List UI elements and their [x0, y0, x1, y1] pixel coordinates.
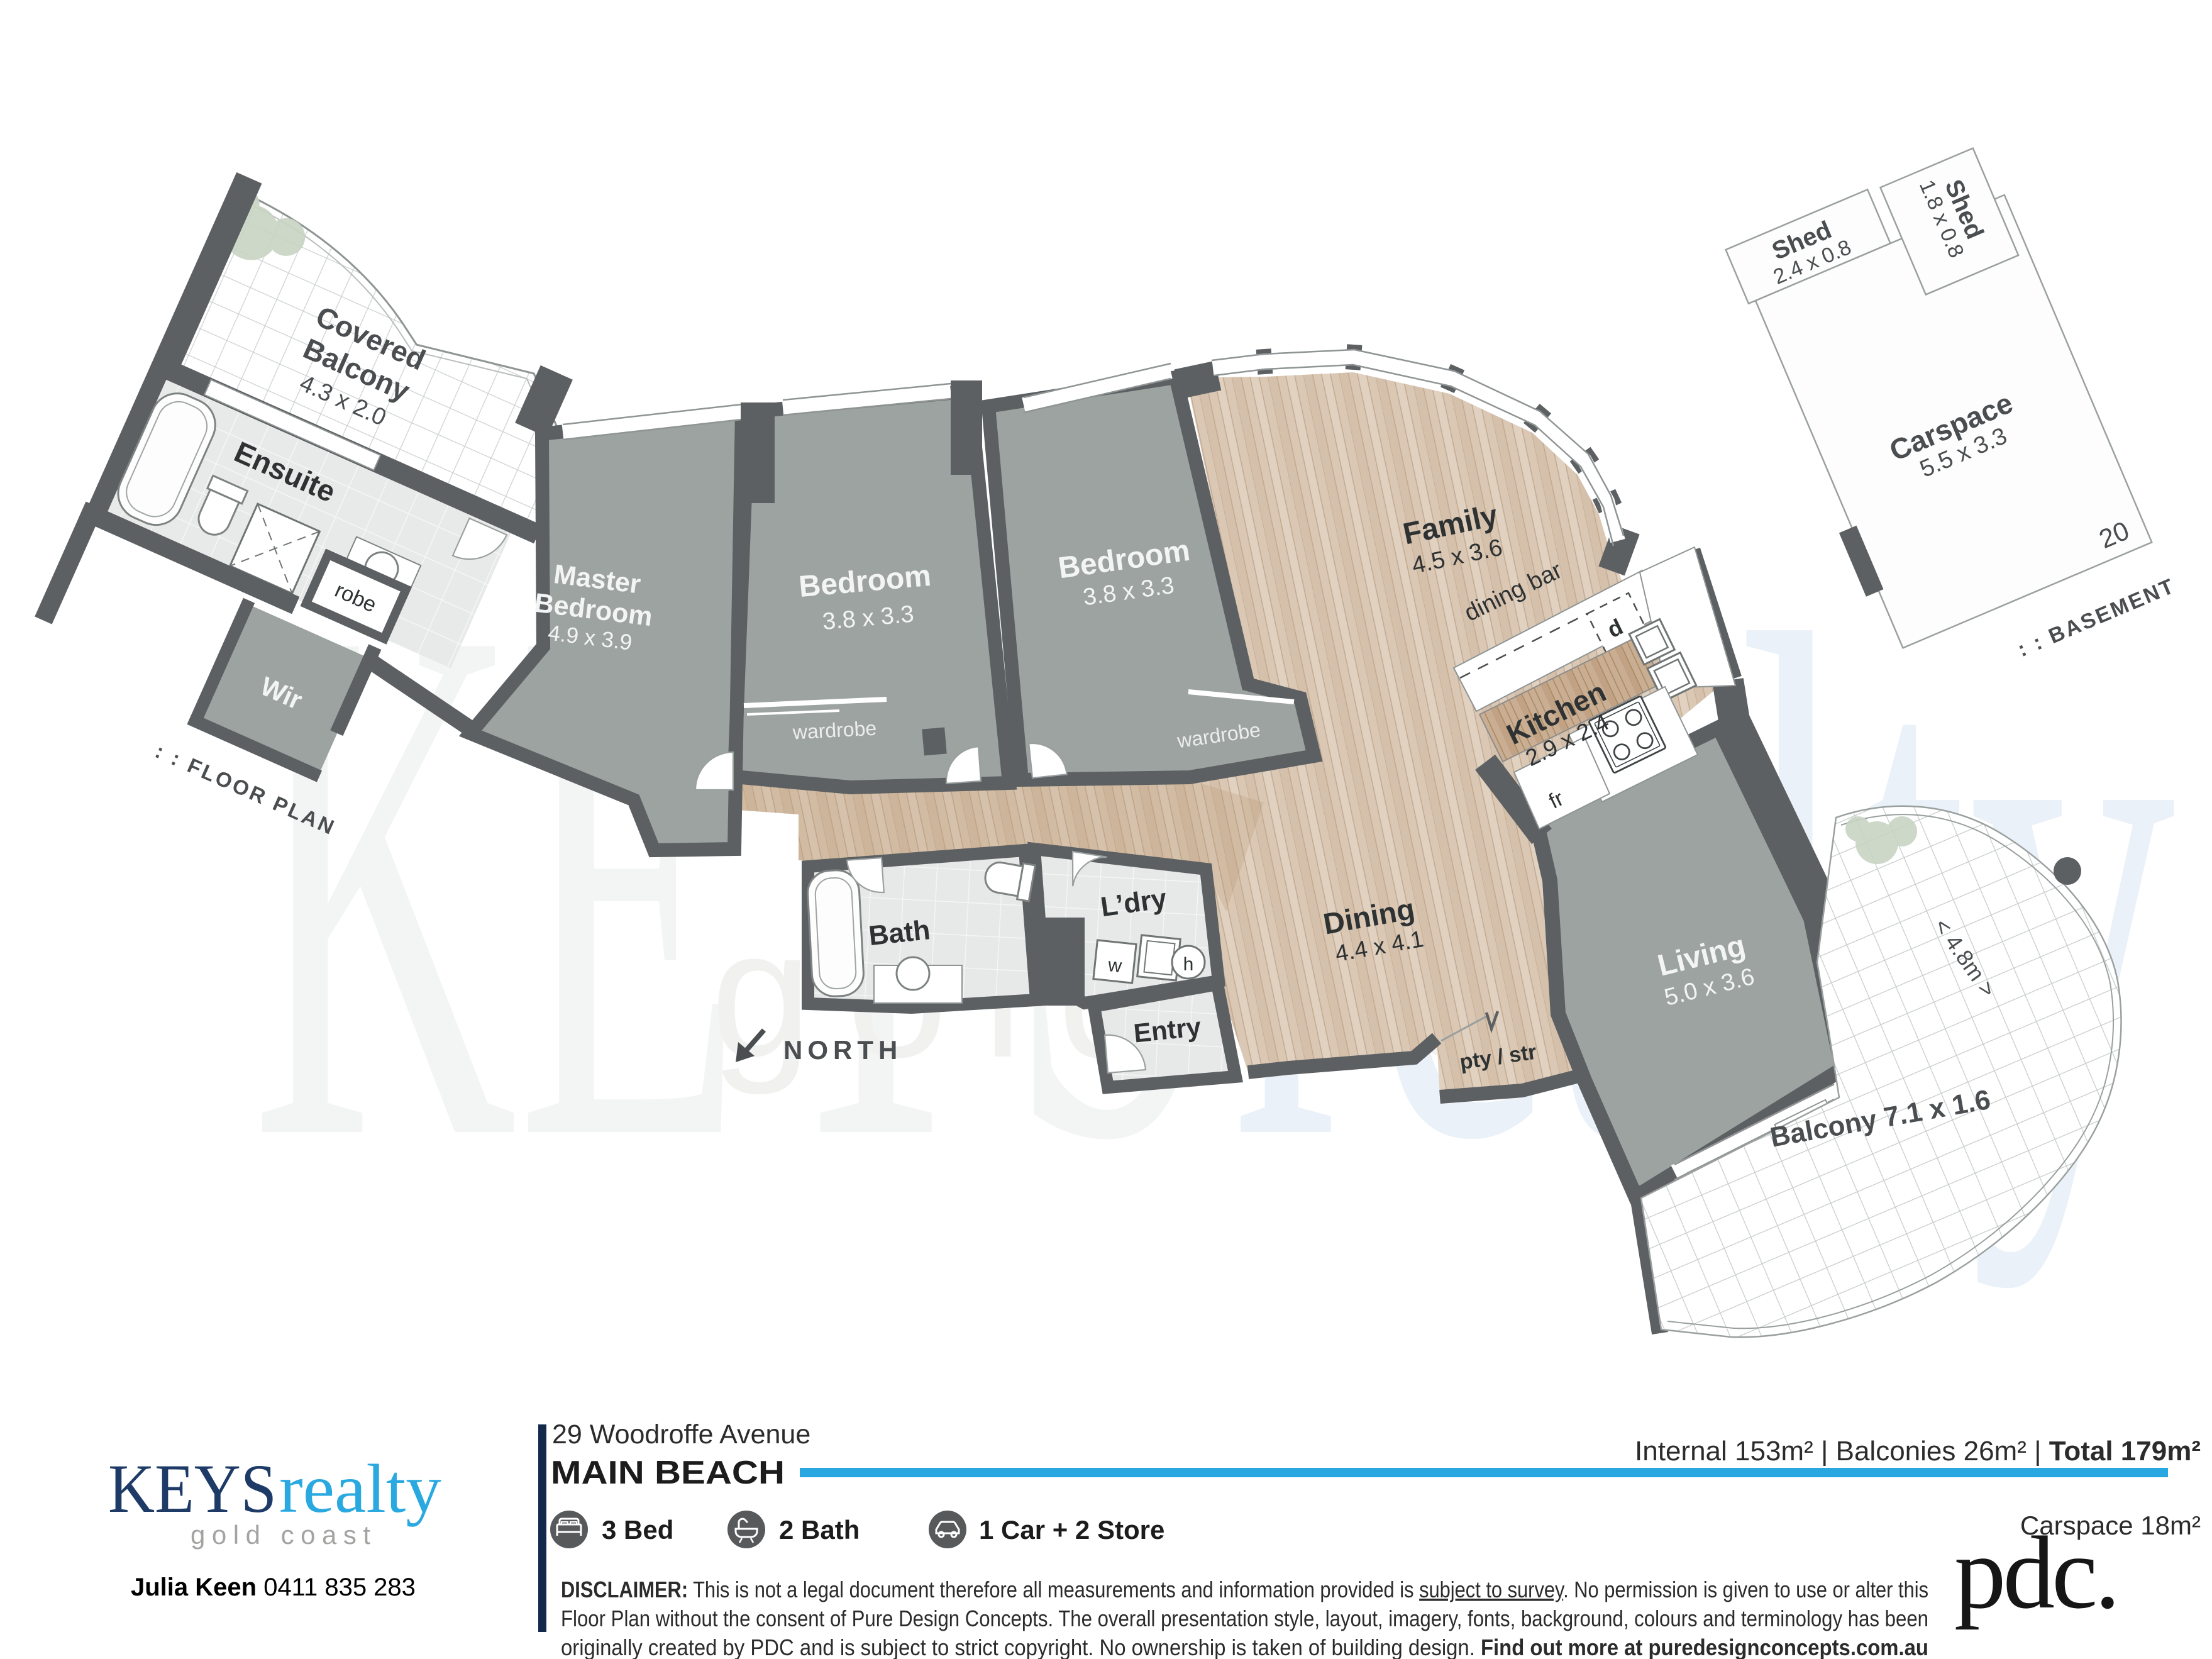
svg-text:KEYS: KEYS [108, 1450, 277, 1527]
svg-text:2 Bath: 2 Bath [779, 1515, 860, 1545]
svg-text:realty: realty [279, 1450, 441, 1527]
svg-text:29 Woodroffe Avenue: 29 Woodroffe Avenue [552, 1419, 810, 1450]
svg-text:NORTH: NORTH [783, 1035, 902, 1065]
svg-text:gold coast: gold coast [191, 1520, 377, 1550]
svg-text:Bath: Bath [867, 914, 931, 952]
svg-text:Internal 153m² | Balconies 26: Internal 153m² | Balconies 26m² | Total … [1635, 1436, 2201, 1467]
svg-text:1 Car + 2 Store: 1 Car + 2 Store [979, 1515, 1164, 1545]
svg-text:3 Bed: 3 Bed [602, 1515, 673, 1545]
svg-text:pdc.: pdc. [1954, 1515, 2118, 1630]
svg-text:originally created by PDC and: originally created by PDC and is subject… [561, 1634, 1928, 1659]
svg-text:DISCLAIMER: This is not a lega: DISCLAIMER: This is not a legal document… [561, 1577, 1928, 1602]
svg-text:Floor Plan without the consent: Floor Plan without the consent of Pure D… [561, 1606, 1928, 1631]
svg-text:h: h [1183, 954, 1194, 975]
svg-text:MAIN BEACH: MAIN BEACH [551, 1455, 785, 1491]
svg-text:w: w [1107, 955, 1123, 977]
svg-text:Julia Keen 0411 835 283: Julia Keen 0411 835 283 [131, 1573, 416, 1601]
svg-text:wardrobe: wardrobe [792, 717, 877, 744]
